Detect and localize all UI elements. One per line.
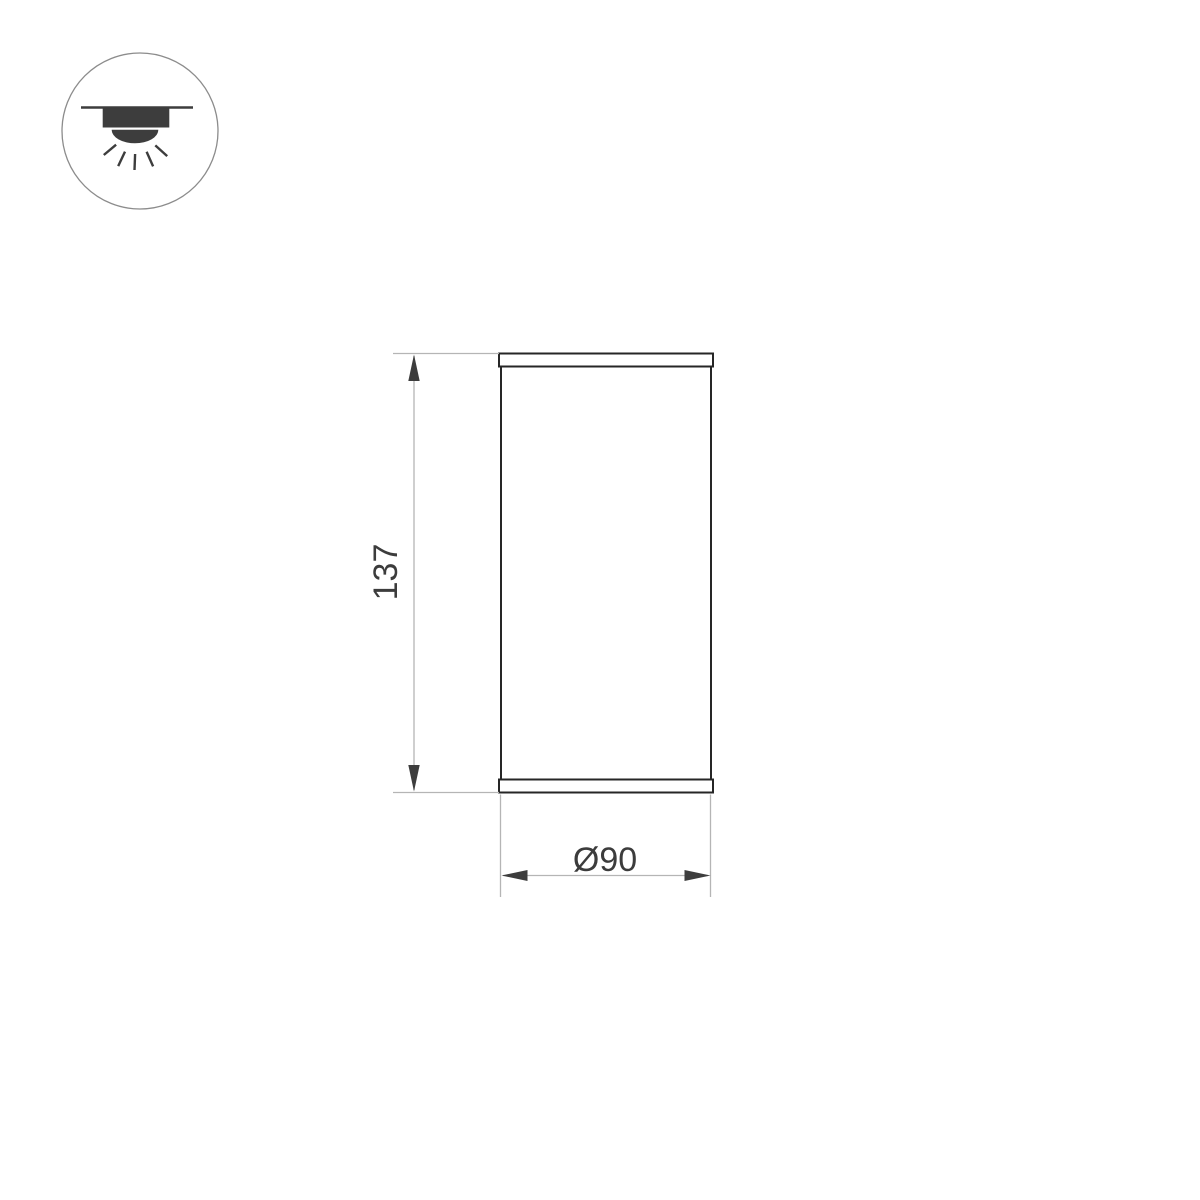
arrow-down-icon — [408, 765, 419, 792]
height-dimension: 137 — [367, 354, 499, 793]
drawing-canvas: 137 Ø90 — [0, 0, 1200, 1200]
fixture-side-view — [499, 354, 713, 793]
arrow-right-icon — [685, 870, 711, 881]
height-dimension-label: 137 — [367, 544, 405, 601]
fixture-body — [501, 354, 711, 793]
diameter-dimension: Ø90 — [501, 795, 711, 898]
diameter-dimension-label: Ø90 — [573, 841, 637, 879]
fixture-bottom-cap — [499, 780, 713, 793]
arrow-left-icon — [502, 870, 528, 881]
product-dimension-drawing-page: 137 Ø90 — [0, 0, 1200, 1200]
luminaire-body — [103, 108, 170, 127]
fixture-top-cap — [499, 354, 713, 367]
arrow-up-icon — [408, 355, 419, 382]
surface-mount-ceiling-light-icon — [62, 53, 218, 209]
